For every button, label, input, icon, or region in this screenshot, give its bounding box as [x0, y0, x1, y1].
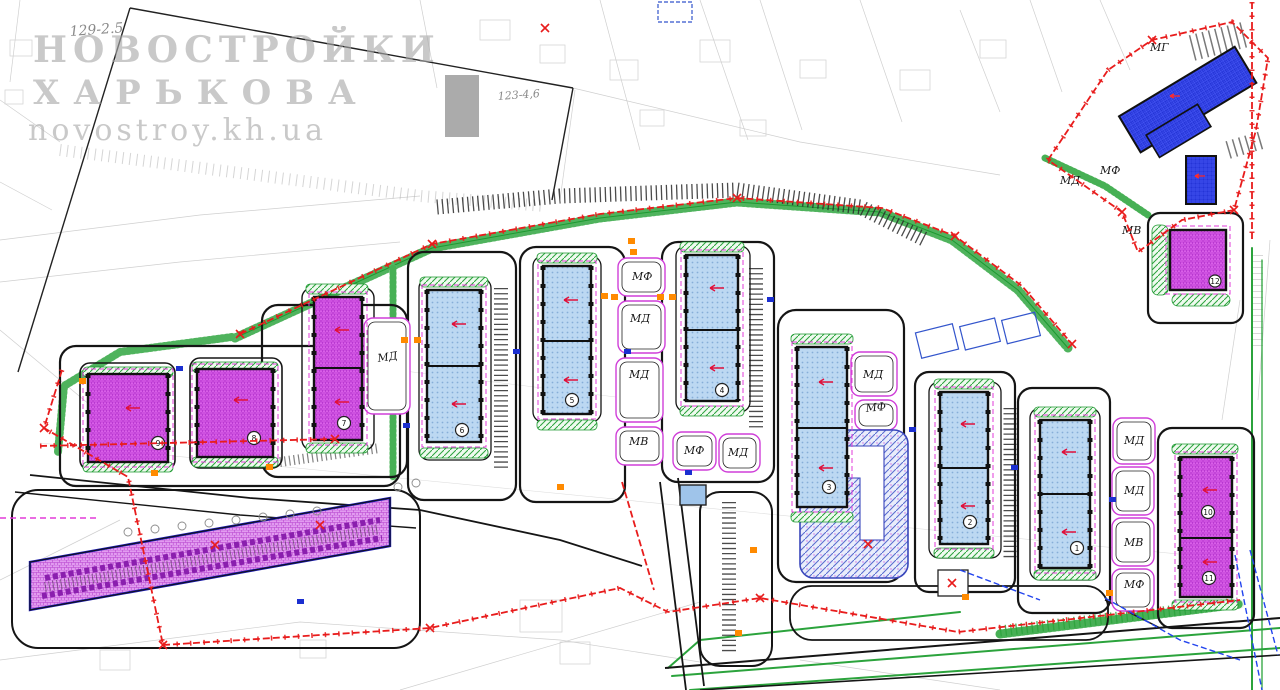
parking-row-topright-2: [1228, 140, 1262, 150]
watermark-url: novostroy.kh.ua: [28, 113, 327, 148]
road-bottom-right-2: [700, 655, 1280, 690]
parcel-note-2: 123-4,6: [497, 87, 540, 103]
plot-label-mf-2: МФ: [631, 270, 652, 283]
building-9: 9: [79, 367, 173, 472]
building-6: 6: [420, 277, 488, 458]
building-3: 3: [791, 334, 853, 522]
plot-label-md-4: МД: [628, 368, 650, 381]
watermark-line-2: ХАРЬКОВА: [33, 73, 370, 113]
red-line-notch: [622, 482, 654, 590]
utility-structure: [680, 485, 706, 505]
parking-garage-building: [30, 479, 420, 610]
buildings-navy-topright: [1119, 47, 1256, 204]
plot-label-md-8: МД: [862, 368, 884, 381]
red-line-crossing: [40, 439, 335, 446]
building-1: 1: [1034, 407, 1096, 580]
plot-label-mf-16: МФ: [1099, 164, 1120, 177]
site-plan-map: 129-2.5 123-4,6: [0, 0, 1280, 690]
watermark: НОВОСТРОЙКИ ХАРЬКОВА novostroy.kh.ua: [28, 26, 441, 148]
building-12: 12: [1152, 225, 1230, 306]
plot-label-md-3: МД: [629, 312, 651, 325]
building-1-number: 1: [1075, 544, 1080, 553]
plot-label-mv-12: МВ: [1123, 536, 1143, 549]
building-7: 7: [306, 284, 368, 453]
watermark-line-1: НОВОСТРОЙКИ: [33, 26, 441, 71]
building-10-11: 10 11: [1172, 444, 1238, 610]
building-3-number: 3: [827, 483, 832, 492]
building-12-number: 12: [1210, 277, 1220, 286]
green-band-bottom-right: [668, 604, 1280, 690]
parking-row-topright-1: [1192, 34, 1247, 48]
plot-label-mg-17: МГ: [1149, 41, 1169, 54]
plot-label-md-11: МД: [1123, 484, 1145, 497]
building-8: 8: [192, 362, 278, 467]
building-11-number: 11: [1204, 574, 1214, 583]
plot-label-md-10: МД: [1123, 434, 1145, 447]
master-plan-canvas: 129-2.5 123-4,6: [0, 0, 1280, 690]
building-5-number: 5: [570, 396, 575, 405]
building-7-number: 7: [342, 419, 347, 428]
building-6-number: 6: [460, 426, 465, 435]
plot-md-1: [364, 318, 410, 414]
building-2-number: 2: [968, 518, 973, 527]
building-2: 2: [934, 379, 994, 558]
building-4: 4: [680, 242, 744, 416]
plot-label-md-7: МД: [727, 446, 749, 459]
plot-label-mf-13: МФ: [1123, 578, 1144, 591]
building-10-number: 10: [1203, 508, 1213, 517]
plot-label-mv-5: МВ: [628, 435, 648, 448]
plot-label-mf-9: МФ: [864, 400, 887, 415]
plot-label-mf-6: МФ: [683, 444, 704, 457]
building-5: 5: [537, 253, 597, 430]
plot-md-3: [618, 301, 665, 353]
building-4-number: 4: [720, 386, 725, 395]
